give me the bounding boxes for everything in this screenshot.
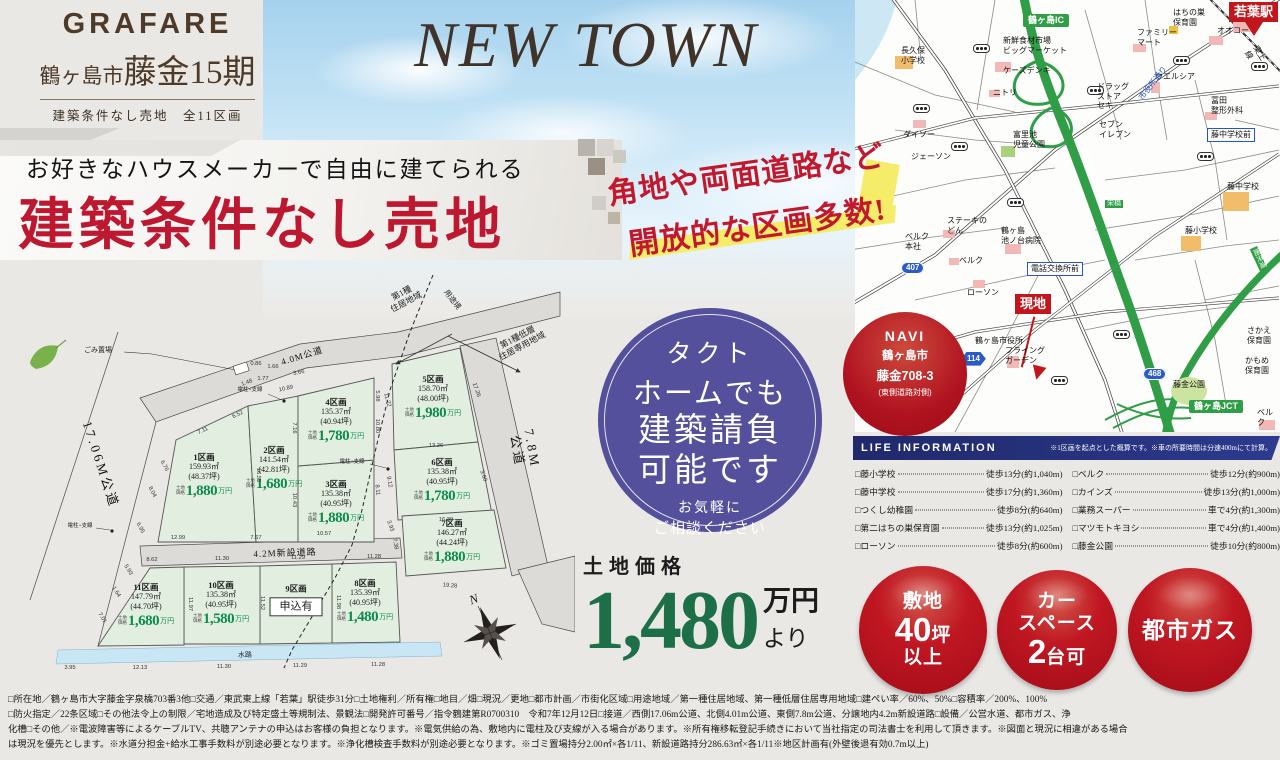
plan-label: 17.06M公道 [79, 420, 121, 511]
lot-tsubo: (44.70坪) [118, 602, 174, 612]
lot-price-prefix: 土地 価格 [193, 614, 202, 624]
legal-line: □所在地／鶴ヶ島市大字藤金字泉橋703番3他□交通／東武東上線「若葉」駅徒歩31… [8, 693, 1272, 708]
dimension-label: 3.95 [64, 665, 75, 671]
map-road-label-sm: 栄橋 [1105, 200, 1123, 208]
lot-number: 2区画 [246, 445, 302, 455]
dimension-label: 5.98 [374, 390, 380, 401]
leader-dots [1115, 546, 1208, 547]
life-item-value: 徒歩8分(約600m) [997, 537, 1062, 555]
lot-price-prefix: 土地 価格 [414, 491, 423, 501]
map-label: ニトリ [993, 88, 1017, 98]
lot-status-badge: 申込有 [270, 598, 323, 617]
lot-label-10区画: 10区画135.38㎡(40.95坪)土地 価格1,580万円 [193, 580, 249, 628]
price-unit: 万円 [763, 579, 819, 619]
life-item-value: 徒歩13分(約1,040m) [986, 465, 1062, 483]
project-city: 鶴ヶ島市 [40, 64, 124, 88]
feature-badge: 都市ガス [1128, 568, 1252, 692]
map-label: フライング ガーデン [1005, 346, 1045, 365]
dimension-label: 12.13 [133, 665, 148, 671]
lot-label-8区画: 8区画135.39㎡(40.95坪)土地 価格1,480万円 [337, 578, 393, 626]
lot-area: 147.79㎡ [118, 592, 174, 602]
lot-price-unit: 万円 [160, 617, 174, 625]
dimension-label: 11.28 [371, 662, 385, 668]
lot-number: 4区画 [308, 397, 364, 407]
feature-badge-line: カー [1037, 591, 1077, 613]
map-badge-red-big: 若葉駅 [1229, 2, 1278, 22]
dimension-label: 7.67 [250, 535, 261, 541]
life-item-value: 徒歩10分(約800m) [1210, 537, 1280, 555]
lot-price-value: 1,680 [128, 612, 159, 630]
dimension-label: 3.60 [478, 470, 488, 483]
tact-line1: タクト [598, 334, 822, 370]
life-information-header: LIFE INFORMATION ※1区画を起点とした概算です。※車の所要時間は… [853, 436, 1280, 460]
dimension-label: 6.52 [232, 410, 245, 420]
lot-price-value: 1,780 [318, 427, 349, 445]
lot-price: 土地 価格1,880万円 [176, 482, 232, 500]
site-plan: 1区画159.93㎡(48.37坪)土地 価格1,880万円2区画141.54㎡… [0, 270, 575, 710]
map-badge-green: 鶴ヶ島IC [1023, 14, 1069, 27]
life-item-value: 車で4分(約1,400m) [1208, 519, 1280, 537]
lot-number: 5区画 [405, 374, 461, 384]
lot-tsubo: (40.95坪) [337, 598, 393, 608]
map-label: 藤中学校 [1227, 182, 1259, 192]
lot-label-3区画: 3区画135.38㎡(40.95坪)土地 価格1,880万円 [308, 479, 364, 527]
map-building-block [973, 280, 985, 288]
feature-badge-line: 敷地 [903, 591, 943, 613]
lot-price: 土地 価格1,980万円 [405, 404, 461, 422]
tact-sub1: お気軽に [598, 497, 822, 517]
dimension-label: 5.93 [122, 564, 133, 577]
lot-price-value: 1,880 [186, 482, 217, 500]
navi-title: NAVI [843, 328, 967, 344]
dimension-label: 7.11 [197, 426, 209, 436]
life-item: □カインズ徒歩13分(約1,000m) [1073, 483, 1280, 501]
plan-label: 7.8M公道 [505, 422, 543, 477]
map-label: ファミリー マート [1137, 28, 1177, 47]
legal-line: □防火指定／22条区域□その他法令上の制限／宅地造成及び特定盛土等規制法、景観法… [8, 708, 1272, 723]
life-item: □第二はちの巣保育園徒歩13分(約1,025m) [855, 519, 1063, 537]
life-item-name: □藤中学校 [855, 483, 896, 501]
map-label: さかえ 保育園 [1247, 326, 1271, 345]
dimension-label: 6.76 [159, 460, 170, 473]
lot-price-unit: 万円 [456, 492, 470, 500]
feature-badge-line: 40坪 [895, 613, 952, 647]
lot-price: 土地 価格1,480万円 [337, 608, 393, 626]
lot-label-9区画: 9区画申込有 [270, 583, 323, 616]
dimension-label: 10.57 [317, 531, 332, 537]
map-building-block [1209, 36, 1223, 45]
leader-dots [915, 510, 995, 511]
life-item-name: □藤小学校 [855, 465, 896, 483]
dimension-label: 11.30 [217, 664, 231, 670]
map-label: ステーキの どん [947, 216, 987, 235]
dimension-label: 7.16 [291, 422, 297, 433]
lot-price-unit: 万円 [379, 613, 393, 621]
plan-label: ごみ置場 [84, 346, 112, 354]
lot-price: 土地 価格1,780万円 [308, 427, 364, 445]
lot-price-prefix: 土地 価格 [424, 552, 433, 562]
plan-label: 4.0M公道 [280, 345, 324, 368]
map-label: ベルク [1257, 408, 1280, 427]
feature-badge-line: スペース [1018, 613, 1096, 635]
lot-label-4区画: 4区画135.37㎡(40.94坪)土地 価格1,780万円 [308, 397, 364, 445]
lot-price-unit: 万円 [447, 409, 461, 417]
dimension-label: 12.99 [171, 535, 186, 541]
dimension-label: 10.89 [278, 385, 293, 394]
lot-price-value: 1,480 [347, 608, 378, 626]
life-item: □つくし幼稚園徒歩8分(約640m) [855, 501, 1063, 519]
map-building-block [1181, 236, 1201, 251]
bus-stop-icon [973, 44, 990, 53]
lot-price-prefix: 土地 価格 [176, 486, 185, 496]
lot-price-unit: 万円 [288, 480, 302, 488]
map-label: ダイソー [903, 130, 935, 140]
bus-stop-icon [1173, 56, 1190, 65]
dimension-label: 16.55 [255, 468, 261, 483]
lot-price: 土地 価格1,880万円 [424, 548, 480, 566]
life-item-value: 徒歩8分(約640m) [997, 501, 1062, 519]
lot-number: 6区画 [414, 457, 470, 467]
feature-badge: カースペース2台可 [997, 570, 1117, 690]
map-label: 長久保 小学校 [901, 46, 925, 65]
leader-dots [898, 474, 985, 475]
mosaic-square [592, 196, 606, 210]
dimension-label: 17.26 [471, 382, 482, 398]
lot-price: 土地 価格1,780万円 [414, 487, 470, 505]
dimension-label: 7.01 [96, 612, 107, 625]
map-label: はちの巣 保育園 [1173, 8, 1205, 27]
navi-city: 鶴ヶ島市 [843, 347, 967, 363]
feature-badge: 敷地40坪以上 [859, 566, 987, 694]
dimension-label: 8.62 [146, 557, 157, 563]
land-price-block: 土地価格 1,480 万円 より [583, 550, 863, 661]
legal-line: 化槽□その他／※電波障害等によるケーブルTV、共聴アンテナの申込はお客様の負担と… [8, 723, 1272, 738]
lot-tsubo: (40.95坪) [308, 499, 364, 509]
lot-price-unit: 万円 [350, 432, 364, 440]
legal-notes: □所在地／鶴ヶ島市大字藤金字泉橋703番3他□交通／東武東上線「若葉」駅徒歩31… [8, 693, 1272, 753]
lot-price-value: 1,880 [434, 548, 465, 566]
lot-price-prefix: 土地 価格 [337, 612, 346, 622]
lot-number: 9区画 [270, 583, 323, 593]
leader-dots [1115, 492, 1202, 493]
navi-address: 藤金708-3 [843, 365, 967, 384]
main-banner: お好きなハウスメーカーで自由に建てられる 建築条件なし売地 [0, 140, 622, 260]
plan-label: 電柱+支線 [237, 387, 262, 393]
dimension-label: 11.52 [259, 596, 265, 610]
map-label: 鶴ヶ島 池ノ台病院 [1001, 226, 1041, 245]
dimension-label: 1.66 [267, 364, 278, 370]
lot-tsubo: (48.37坪) [176, 472, 232, 482]
lot-area: 135.38㎡ [193, 590, 249, 600]
project-title: 鶴ヶ島市藤金15期 [30, 45, 265, 93]
legal-line: は現況を優先とします。※水道分担金+給水工事手数料が別途必要となります。※浄化槽… [8, 738, 1272, 753]
map-badge-green: 鶴ヶ島JCT [1189, 400, 1243, 413]
feature-badge-line: 2台可 [1028, 635, 1086, 669]
lot-area: 135.38㎡ [414, 467, 470, 477]
lot-price-value: 1,880 [318, 509, 349, 527]
dimension-label: 11.72 [382, 392, 391, 407]
map-label: 藤小学校 [1185, 226, 1217, 236]
map-label: 藤金公園 [1173, 380, 1205, 390]
lot-price-prefix: 土地 価格 [308, 431, 317, 441]
dimension-label: 3.93 [385, 520, 395, 533]
leader-dots [898, 492, 985, 493]
dimension-label: 13.26 [429, 443, 444, 449]
dimension-label: 19.28 [443, 582, 458, 589]
map-box-blue: 藤中学校前 [1207, 128, 1255, 142]
plan-label: 第1種低層 住居専用地域 [493, 321, 547, 362]
life-item: □ベルク徒歩12分(約900m) [1073, 465, 1280, 483]
dimension-label: 0.86 [250, 361, 261, 367]
lot-price: 土地 価格1,680万円 [118, 612, 174, 630]
lot-price-prefix: 土地 価格 [405, 408, 414, 418]
life-item-value: 徒歩13分(約1,000m) [1204, 483, 1280, 501]
map-label: ローソン [967, 288, 999, 298]
plan-label: 4.2M新設道路 [253, 547, 317, 560]
lot-tsubo: (40.95坪) [414, 477, 470, 487]
lot-price-prefix: 土地 価格 [118, 616, 127, 626]
newtown-headline: NEW TOWN [296, 8, 876, 82]
brand-logo: GRAFARE [30, 8, 265, 41]
map-building-block [1005, 244, 1021, 254]
map-label: 新鮮食材市場 ビッグマーケット [1003, 36, 1067, 55]
lot-price-unit: 万円 [218, 487, 232, 495]
lot-number: 8区画 [337, 578, 393, 588]
dimension-label: 11.30 [215, 556, 229, 562]
lot-tsubo: (48.00坪) [405, 394, 461, 404]
lot-tsubo: (40.94坪) [308, 417, 364, 427]
bus-stop-icon [1113, 330, 1130, 339]
lot-price-value: 1,580 [203, 610, 234, 628]
tact-line2: ホームでも [598, 370, 822, 412]
map-label: ベルク [959, 256, 983, 266]
dimension-label: 11.28 [367, 554, 381, 560]
project-name: 藤金15期 [124, 55, 256, 91]
lot-number: 10区画 [193, 580, 249, 590]
banner-title: 建築条件なし売地 [18, 180, 506, 261]
life-item-name: □マツモトキヨシ [1073, 519, 1140, 537]
life-item-value: 車で4分(約1,300m) [1208, 501, 1280, 519]
bus-stop-icon [951, 142, 968, 151]
plan-label: 用途境 [442, 288, 463, 311]
mosaic-square [613, 150, 626, 163]
dimension-label: 1.77 [257, 376, 268, 382]
lot-label-11区画: 11区画147.79㎡(44.70坪)土地 価格1,680万円 [118, 582, 174, 630]
lot-price-value: 1,980 [415, 404, 446, 422]
life-item-name: □業務スーパー [1073, 501, 1131, 519]
bus-stop-icon [1007, 198, 1024, 207]
dimension-label: 8.04 [147, 486, 158, 499]
lot-price-prefix: 土地 価格 [246, 479, 255, 489]
map-building-block [913, 120, 926, 128]
dimension-label: 6.95 [135, 522, 146, 535]
life-item-name: □第二はちの巣保育園 [855, 519, 940, 537]
lot-price-prefix: 土地 価格 [308, 513, 317, 523]
lot-tsubo: (40.95坪) [193, 600, 249, 610]
dimension-label: 10.43 [291, 493, 297, 508]
lot-label-5区画: 5区画158.70㎡(48.00坪)土地 価格1,980万円 [405, 374, 461, 422]
plan-label: 電柱+支線 [339, 459, 364, 465]
map-label: ドラッグ ストア セキ [1097, 82, 1129, 111]
lot-label-1区画: 1区画159.93㎡(48.37坪)土地 価格1,880万円 [176, 452, 232, 500]
dimension-label: 11.97 [187, 597, 193, 611]
banner-catch-copy: お好きなハウスメーカーで自由に建てられる [26, 150, 525, 184]
lot-area: 158.70㎡ [405, 384, 461, 394]
life-information-title: LIFE INFORMATION [861, 442, 997, 454]
map-label: かもめ 保育園 [1245, 356, 1269, 375]
dimension-label: 11.29 [293, 663, 307, 669]
map-label: セブン イレブン [1099, 120, 1131, 139]
map-label: 富里池 児童公園 [1013, 130, 1045, 149]
lot-tsubo: (44.24坪) [424, 538, 480, 548]
life-item-value: 徒歩17分(約1,360m) [986, 483, 1062, 501]
dimension-label: 10.80 [374, 419, 380, 434]
divider [40, 99, 255, 100]
lot-area: 135.38㎡ [308, 489, 364, 499]
leader-dots [1141, 528, 1206, 529]
life-item-value: 徒歩13分(約1,025m) [986, 519, 1062, 537]
life-item: □業務スーパー車で4分(約1,300m) [1073, 501, 1280, 519]
dimension-label: 11.29 [291, 555, 305, 561]
tact-home-circle: タクト ホームでも 建築請負 可能です お気軽に ご相談ください [598, 308, 822, 532]
map-box-blue: 電話交換所前 [1027, 262, 1083, 276]
life-item-value: 徒歩12分(約900m) [1210, 465, 1280, 483]
mosaic-square [588, 158, 605, 175]
lot-price: 土地 価格1,580万円 [193, 610, 249, 628]
feature-badge-line: 以上 [903, 647, 943, 669]
life-item: □藤金公園徒歩10分(約800m) [1073, 537, 1280, 555]
life-item: □ローソン徒歩8分(約600m) [855, 537, 1063, 555]
plan-label: N [467, 591, 480, 608]
map-label: 鶴ヶ島市役所 [975, 336, 1023, 346]
price-suffix: より [763, 619, 819, 653]
map-label: ケーズデンキ [1003, 66, 1051, 76]
map-shield: 407 [901, 262, 924, 274]
navi-note: (東側道路対側) [843, 387, 967, 398]
lot-label-6区画: 6区画135.38㎡(40.95坪)土地 価格1,780万円 [414, 457, 470, 505]
mosaic-square [597, 139, 614, 156]
map-label: 冨田 整形外科 [1211, 96, 1243, 115]
plan-label: 電柱+支線 [67, 523, 92, 529]
project-subtitle: 建築条件なし売地 全11区画 [30, 105, 265, 124]
lot-price: 土地 価格1,880万円 [308, 509, 364, 527]
lot-number: 3区画 [308, 479, 364, 489]
lot-label-7区画: 7区画146.27㎡(44.24坪)土地 価格1,880万円 [424, 518, 480, 566]
leader-dots [1133, 510, 1206, 511]
map-building-block [949, 258, 959, 265]
map-label: ジェーソン [911, 152, 951, 162]
life-item: □藤小学校徒歩13分(約1,040m) [855, 465, 1063, 483]
life-item: □藤中学校徒歩17分(約1,360m) [855, 483, 1063, 501]
lot-price-value: 1,780 [424, 487, 455, 505]
leader-dots [898, 546, 996, 547]
dimension-label: 3.66 [293, 369, 305, 377]
life-item-name: □つくし幼稚園 [855, 501, 913, 519]
lot-area: 146.27㎡ [424, 528, 480, 538]
map-badge-red-big: 現地 [1015, 294, 1051, 314]
life-item-name: □ローソン [855, 537, 896, 555]
dimension-label: 9.12 [385, 476, 393, 488]
lot-area: 141.54㎡ [246, 455, 302, 465]
dimension-label: 8.11 [374, 484, 381, 495]
lot-number: 11区画 [118, 582, 174, 592]
dimension-label: 11.98 [335, 595, 341, 609]
life-item-name: □カインズ [1073, 483, 1113, 501]
leader-dots [1106, 474, 1208, 475]
lot-price-unit: 万円 [350, 514, 364, 522]
navi-circle: NAVI 鶴ヶ島市 藤金708-3 (東側道路対側) [843, 312, 967, 436]
lot-price-unit: 万円 [235, 615, 249, 623]
bus-stop-icon [913, 104, 930, 113]
tact-line4: 可能です [598, 452, 822, 492]
lot-area: 135.39㎡ [337, 588, 393, 598]
plan-label: 水路 [238, 651, 252, 659]
life-information-note: ※1区画を起点とした概算です。※車の所要時間は分速400mにて計算。 [1050, 443, 1272, 453]
brand-block: GRAFARE 鶴ヶ島市藤金15期 建築条件なし売地 全11区画 [30, 8, 265, 124]
lot-area: 159.93㎡ [176, 462, 232, 472]
map-building-block [1223, 192, 1249, 211]
dimension-label: 16.39 [439, 517, 454, 523]
tact-line3: 建築請負 [598, 412, 822, 452]
lot-number: 1区画 [176, 452, 232, 462]
bus-stop-icon [1051, 376, 1068, 385]
lot-price-unit: 万円 [466, 553, 480, 561]
price-amount: 1,480 [583, 581, 757, 661]
dimension-label: 7.38 [391, 538, 399, 550]
leader-dots [942, 528, 985, 529]
map-label: オオコー [1217, 26, 1249, 36]
life-item: □マツモトキヨシ車で4分(約1,400m) [1073, 519, 1280, 537]
map-shield: 468 [1143, 368, 1166, 380]
feature-badge-line: 都市ガス [1142, 617, 1238, 643]
life-item-name: □藤金公園 [1073, 537, 1114, 555]
lot-area: 135.37㎡ [308, 407, 364, 417]
life-information: LIFE INFORMATION ※1区画を起点とした概算です。※車の所要時間は… [853, 436, 1280, 555]
bus-stop-icon [1197, 152, 1214, 161]
tact-sub2: ご相談ください [598, 517, 822, 538]
mosaic-square [578, 139, 595, 156]
life-item-name: □ベルク [1073, 465, 1105, 483]
plan-label: 第1種 住居地域 [384, 281, 423, 314]
